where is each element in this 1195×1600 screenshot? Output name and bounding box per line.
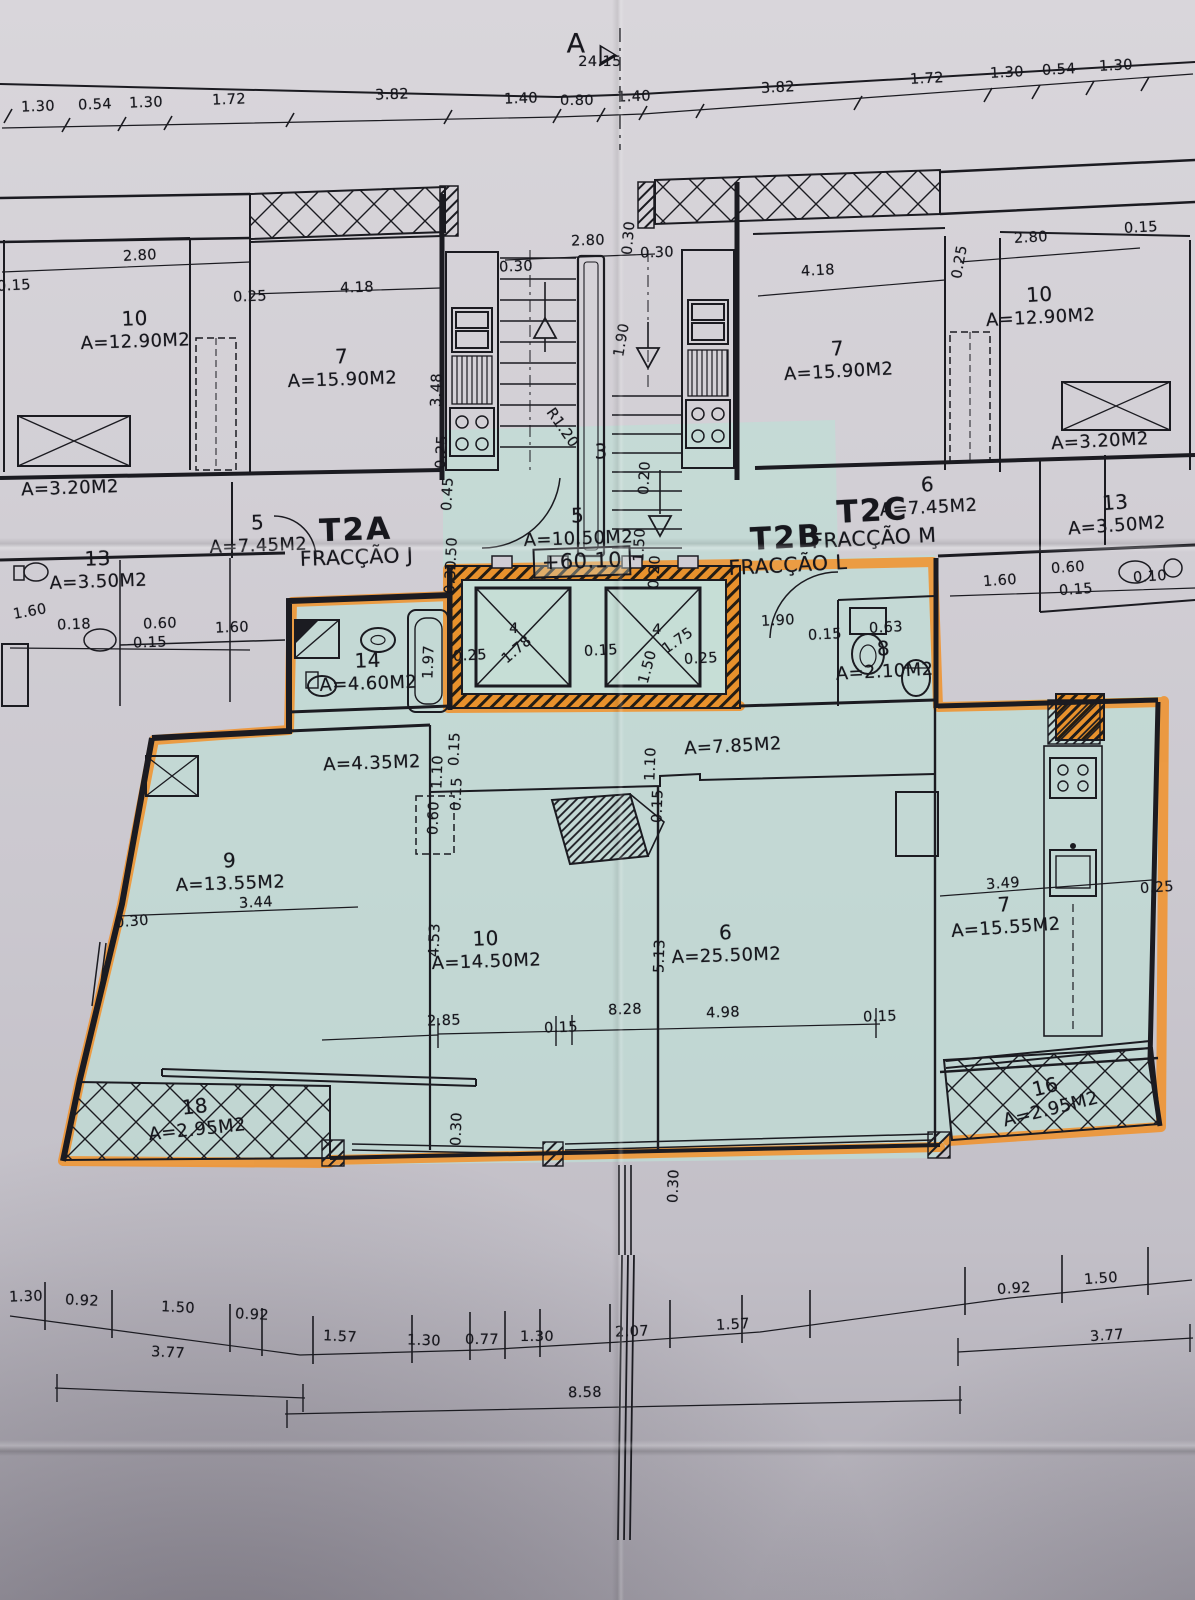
dimension-label: 0.60 <box>143 615 177 632</box>
dimension-label: 0.15 <box>1059 581 1094 599</box>
dimension-label: 0.20 <box>636 461 654 496</box>
room-label: 7A=15.90M2 <box>782 333 894 386</box>
fraction-name: FRACÇÃO J <box>299 545 413 570</box>
fraction-label: T2AFRACÇÃO J <box>298 512 413 570</box>
dimension-label: 5.13 <box>651 939 668 973</box>
dimension-label: 1.40 <box>504 90 538 107</box>
dimension-label: 0.15 <box>584 642 619 660</box>
room-number: 3 <box>594 440 607 465</box>
room-label: 7A=15.55M2 <box>949 888 1062 943</box>
balcony-band-left <box>250 187 445 239</box>
dimension-label: 0.45 <box>439 477 457 512</box>
upper-left-unit <box>0 194 442 480</box>
room-number: 5 <box>208 509 306 537</box>
dimension-label: 3.77 <box>151 1344 186 1362</box>
dimension-label: 0.15 <box>863 1008 897 1025</box>
dimension-label: 0.10 <box>1133 568 1168 586</box>
room-area: A=13.55M2 <box>175 871 285 897</box>
dimension-label: 0.30 <box>640 244 674 261</box>
room-label: 13A=3.50M2 <box>48 545 147 596</box>
dimension-label: 1.50 <box>161 1299 196 1317</box>
dimension-label: 3.82 <box>375 86 409 103</box>
dimension-label: 3.48 <box>428 373 445 407</box>
room-number: 6 <box>670 918 780 947</box>
dimension-label: 1.30 <box>990 64 1025 82</box>
room-label: 5A=10.50M2 <box>522 501 633 552</box>
dimension-label: 1.90 <box>761 612 796 630</box>
room-label: 10A=12.90M2 <box>984 279 1096 332</box>
room-label: 6A=25.50M2 <box>670 918 781 969</box>
fraction-label: T2CFRACÇÃO M <box>809 492 937 553</box>
dimension-label: 0.77 <box>465 1332 499 1348</box>
dimension-label: 1.57 <box>716 1316 751 1334</box>
dimension-label: 1.30 <box>21 98 55 115</box>
room-area: A=10.50M2 <box>523 526 633 552</box>
dimension-label: 8.58 <box>568 1385 602 1402</box>
room-number: 5 <box>522 501 632 530</box>
wall-pier <box>322 1140 344 1166</box>
dimension-label: 1.72 <box>910 70 945 88</box>
dimension-label: 4 <box>652 622 662 638</box>
balcony-band-right <box>655 170 940 224</box>
dimension-label: 0.80 <box>560 93 594 109</box>
dimension-label: 1.30 <box>520 1329 554 1345</box>
dimension-label: 2.80 <box>1014 229 1049 247</box>
dimension-label: 2.80 <box>123 247 158 265</box>
dimension-label: 3.44 <box>239 894 274 912</box>
room-label: 5A=7.45M2 <box>208 509 307 560</box>
dimension-label: 0.15 <box>0 277 31 295</box>
dimension-label: 1.57 <box>323 1328 358 1346</box>
dimension-label: 1.10 <box>429 755 446 789</box>
room-number: 7 <box>286 342 396 371</box>
room-label: 10A=14.50M2 <box>430 924 541 975</box>
dimension-label: 2.85 <box>427 1012 461 1029</box>
dimension-label: 0.25 <box>684 650 719 668</box>
dimension-label: 0.63 <box>869 619 904 637</box>
elevator-core <box>448 556 740 708</box>
dimension-label: 1.40 <box>617 88 651 105</box>
room-area: A=3.50M2 <box>49 570 147 596</box>
dimension-label: 1.30 <box>129 94 163 111</box>
dimension-label: 2.80 <box>571 232 605 249</box>
room-area: A=25.50M2 <box>671 943 781 969</box>
room-number: 10 <box>430 924 540 953</box>
room-number: 10 <box>79 304 189 333</box>
dimension-label: 0.15 <box>446 732 463 766</box>
dimension-label: 0.18 <box>57 616 91 633</box>
dimension-label: 0.60 <box>1051 559 1086 577</box>
wall-pier <box>543 1142 563 1166</box>
dimension-label: 1.60 <box>983 572 1018 590</box>
room-label: 7A=15.90M2 <box>286 342 397 393</box>
dimension-label: 0.20 <box>646 555 664 590</box>
dimension-label: 1.10 <box>642 747 659 781</box>
dimension-label: 0.92 <box>235 1306 270 1324</box>
room-area: A=4.35M2 <box>323 751 421 777</box>
room-area: A=4.60M2 <box>319 672 417 698</box>
dimension-label: 0.30 <box>114 913 149 932</box>
room-area: A=14.50M2 <box>431 949 541 975</box>
dimension-label: 0.30 <box>620 220 639 255</box>
dimension-label: 0.30 <box>448 1112 465 1146</box>
dimension-label: 4.18 <box>801 262 836 280</box>
dimension-label: 2.07 <box>615 1323 649 1340</box>
room-area: A=15.90M2 <box>287 367 397 393</box>
room-label: A=3.20M2 <box>21 476 119 502</box>
dimension-label: 4 <box>509 621 519 637</box>
dimension-label: 0.54 <box>78 96 112 113</box>
dimension-label: 3.82 <box>761 79 796 97</box>
room-number: 13 <box>48 545 146 573</box>
dimension-label: 0.15 <box>649 789 666 823</box>
room-label: A=4.35M2 <box>323 751 421 777</box>
dimension-label: 1.30 <box>1099 57 1134 75</box>
floorplan-photo: A +60.10 1.300.541.301.723.8224.151.400.… <box>0 0 1195 1600</box>
dimension-label: 0.25 <box>453 647 488 665</box>
dimension-label: 3.77 <box>1090 1327 1125 1345</box>
dimension-label: 0.25 <box>233 288 267 305</box>
dimension-label: 0.92 <box>997 1280 1032 1298</box>
dimension-label: 1.97 <box>420 645 437 679</box>
room-label: 13A=3.50M2 <box>1066 487 1167 541</box>
dimension-label: 0.25 <box>433 435 451 470</box>
dimension-label: 1.30 <box>9 1288 43 1305</box>
dimension-label: 0.15 <box>133 634 167 651</box>
dimension-label: 0.30 <box>499 258 533 275</box>
wall-pier <box>638 182 654 228</box>
room-label: 8A=2.10M2 <box>834 634 934 687</box>
room-area: A=12.90M2 <box>80 329 190 355</box>
dimension-label: 4.98 <box>706 1004 740 1021</box>
room-area: A=3.20M2 <box>21 476 119 502</box>
dimension-label: 1.60 <box>215 619 249 636</box>
room-label: 18A=2.95M2 <box>145 1089 247 1146</box>
room-label: 9A=13.55M2 <box>174 846 285 897</box>
room-label: 14A=4.60M2 <box>318 647 417 698</box>
dimension-label: 24.15 <box>578 54 622 70</box>
dimension-label: 0.60 <box>425 801 442 835</box>
dimension-label: 0.30 <box>442 560 460 595</box>
dimension-label: 4.18 <box>340 279 374 296</box>
dimension-label: 1.30 <box>407 1332 441 1349</box>
dimension-label: 0.54 <box>1042 61 1077 79</box>
dimension-label: 8.28 <box>608 1001 642 1018</box>
dimension-label: 1.50 <box>1084 1270 1119 1288</box>
dimension-label: 0.15 <box>544 1019 578 1036</box>
room-label: 3 <box>594 440 607 465</box>
room-number: 9 <box>174 846 284 875</box>
dimension-label: 3.49 <box>986 875 1021 893</box>
dimension-label: 0.30 <box>665 1169 682 1203</box>
dimension-label: 1.72 <box>212 91 246 108</box>
dimension-label: 0.15 <box>1124 219 1159 237</box>
room-number: 14 <box>318 647 416 675</box>
wall-pier <box>928 1132 950 1158</box>
room-label: 10A=12.90M2 <box>79 304 190 355</box>
dimension-label: 0.25 <box>1140 879 1175 897</box>
room-area: A=7.45M2 <box>209 534 307 560</box>
dimension-label: 0.15 <box>448 777 465 811</box>
dimension-label: 0.92 <box>65 1292 100 1310</box>
building-outline <box>0 62 1195 242</box>
